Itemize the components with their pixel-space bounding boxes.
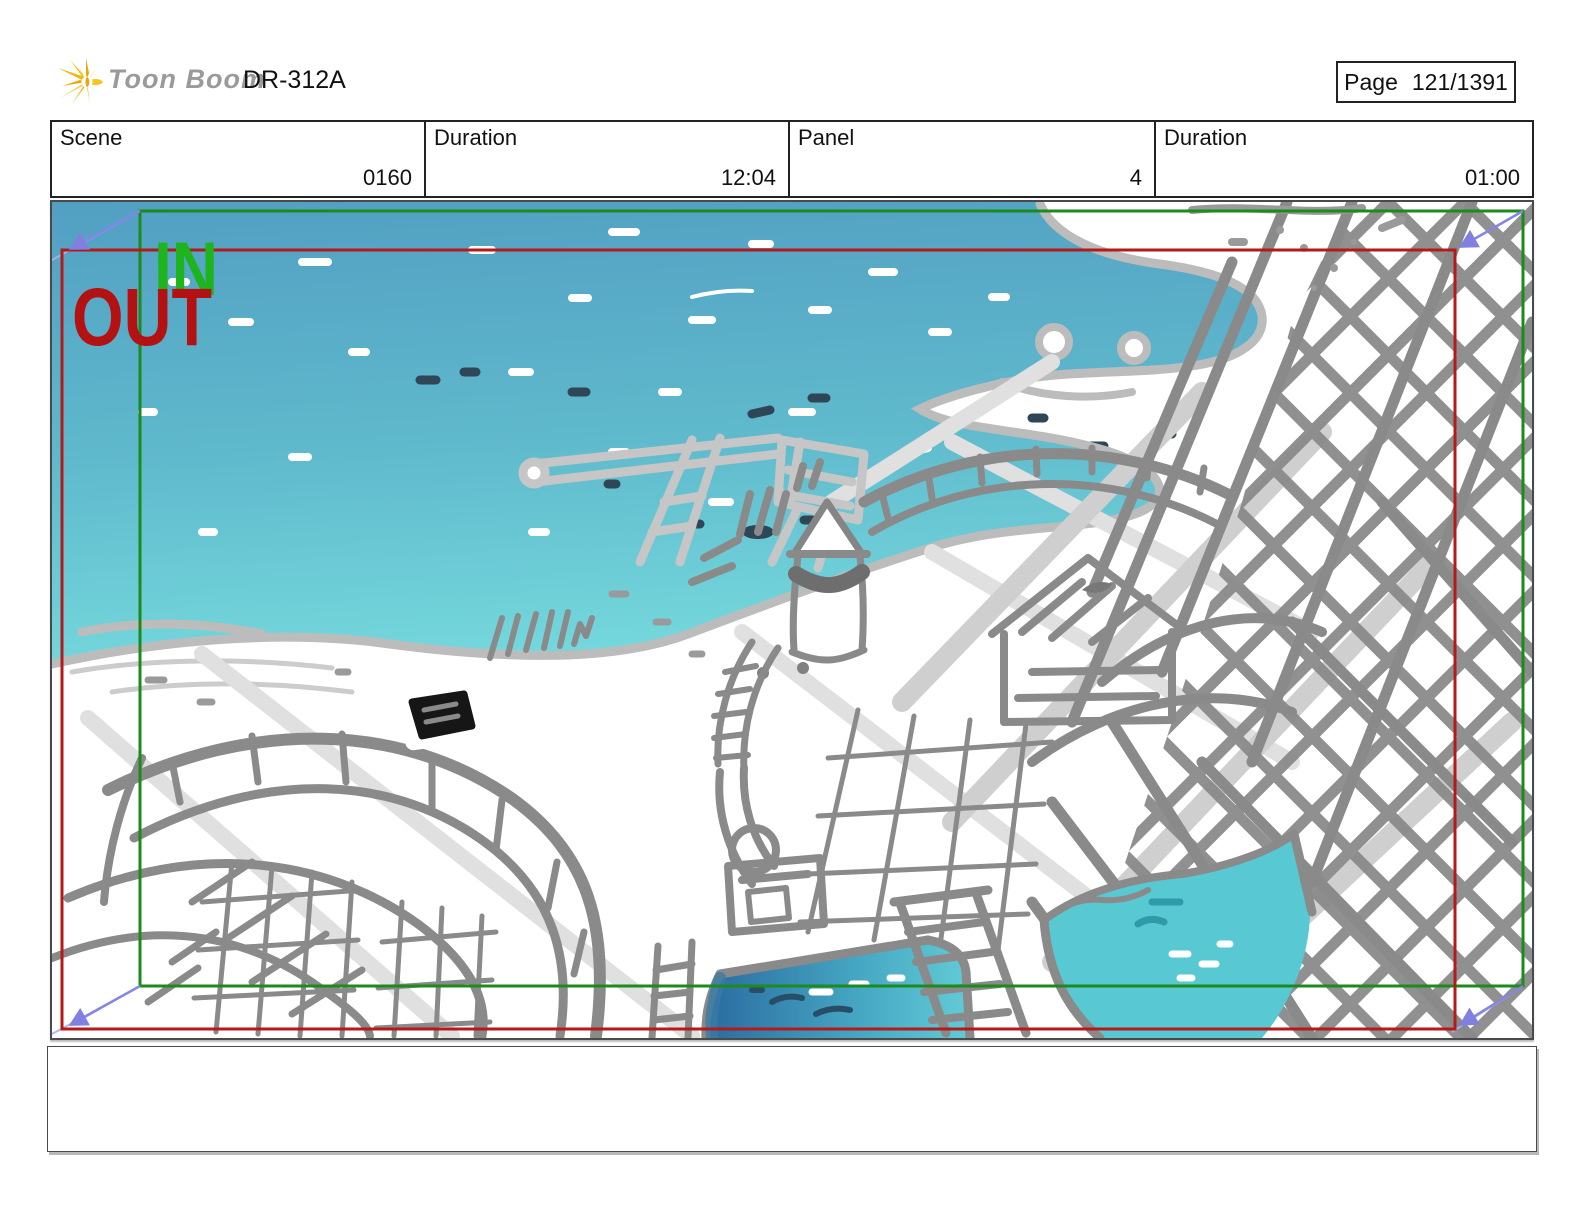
coast-rock	[1039, 327, 1069, 357]
plaza-grid	[800, 710, 1052, 950]
scene-value: 0160	[363, 166, 412, 190]
scene-duration-cell: Duration 12:04	[424, 122, 788, 196]
scene-duration-value: 12:04	[721, 166, 776, 190]
storyboard-page: Toon Boom DR-312A Page 121/1391 Scene 01…	[0, 0, 1584, 1224]
panel-cell: Panel 4	[788, 122, 1154, 196]
storyboard-panel-image: IN OUT	[50, 200, 1534, 1040]
coast-rock	[1121, 335, 1147, 361]
info-bar: Scene 0160 Duration 12:04 Panel 4 Durati…	[50, 120, 1534, 198]
scene-duration-label: Duration	[434, 126, 517, 150]
panel-duration-cell: Duration 01:00	[1154, 122, 1532, 196]
stairs	[714, 642, 778, 884]
toonboom-burst-icon	[56, 58, 104, 106]
panel-duration-label: Duration	[1164, 126, 1247, 150]
panel-duration-value: 01:00	[1465, 166, 1520, 190]
coaster-curves	[52, 734, 600, 1036]
sea-water	[52, 202, 1262, 664]
scene-cell: Scene 0160	[52, 122, 424, 196]
page-number-box: Page 121/1391	[1336, 61, 1516, 103]
black-bench	[398, 681, 486, 752]
scene-label: Scene	[60, 126, 122, 150]
panel-value: 4	[1130, 166, 1142, 190]
panel-sketch: IN OUT	[52, 202, 1532, 1038]
document-title: DR-312A	[243, 66, 346, 95]
page-label: Page	[1344, 69, 1398, 96]
page-value: 121/1391	[1412, 69, 1508, 96]
caption-box	[47, 1046, 1537, 1152]
camera-out-label: OUT	[72, 272, 212, 363]
panel-label: Panel	[798, 126, 854, 150]
